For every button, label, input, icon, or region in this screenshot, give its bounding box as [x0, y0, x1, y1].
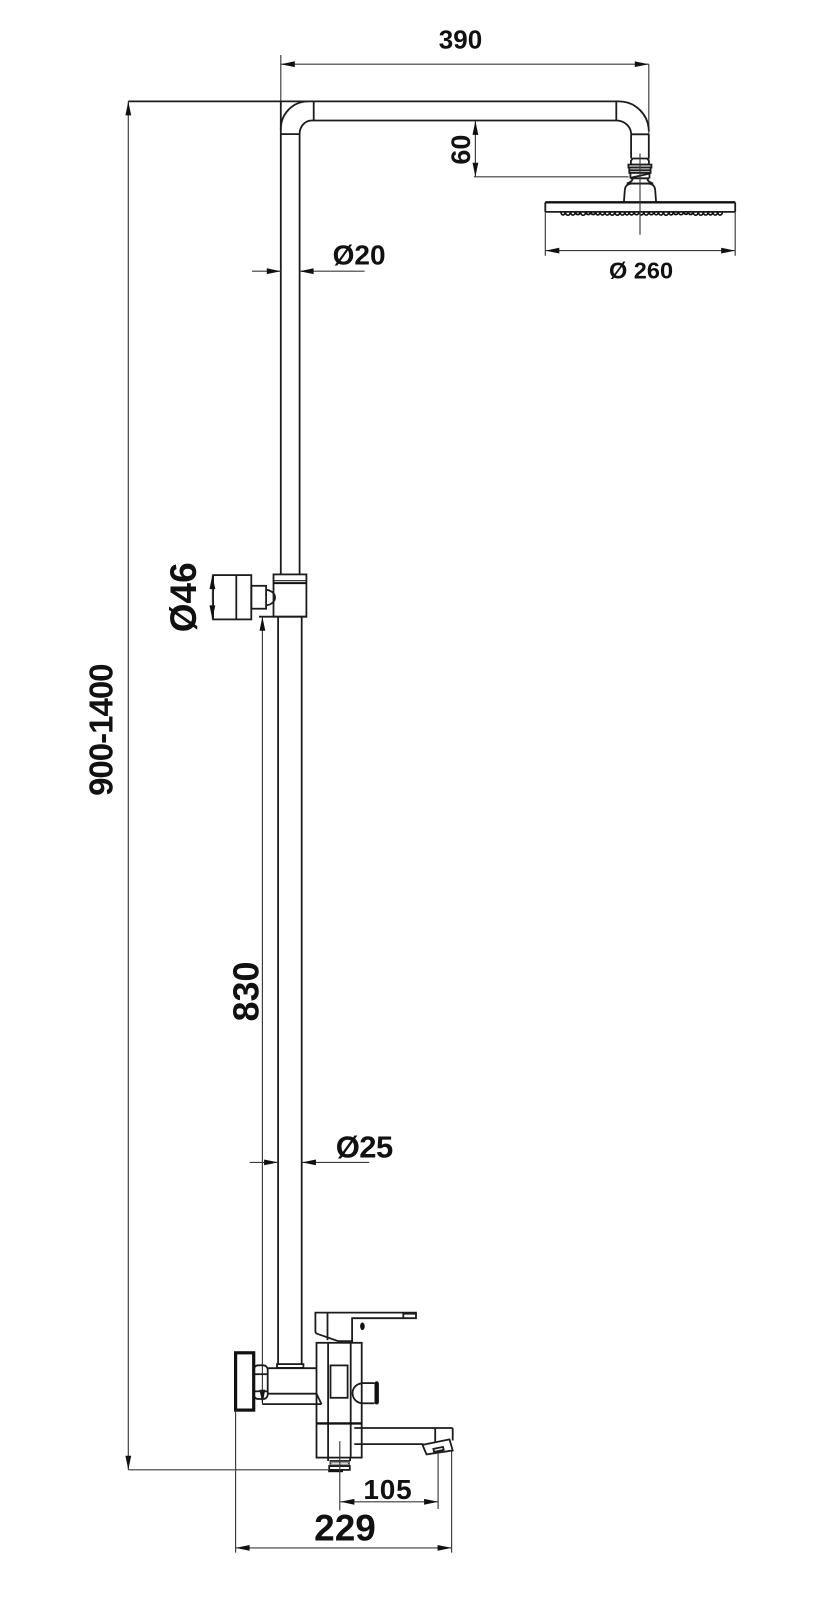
svg-text:900-1400: 900-1400: [82, 664, 119, 795]
svg-text:Ø 260: Ø 260: [609, 257, 673, 283]
svg-text:105: 105: [363, 1474, 412, 1505]
svg-text:60: 60: [446, 135, 476, 165]
svg-text:390: 390: [439, 25, 482, 55]
svg-text:830: 830: [226, 961, 267, 1021]
svg-text:Ø25: Ø25: [336, 1129, 393, 1164]
svg-text:Ø46: Ø46: [163, 562, 204, 632]
svg-text:Ø20: Ø20: [333, 240, 386, 271]
svg-text:229: 229: [314, 1508, 376, 1549]
